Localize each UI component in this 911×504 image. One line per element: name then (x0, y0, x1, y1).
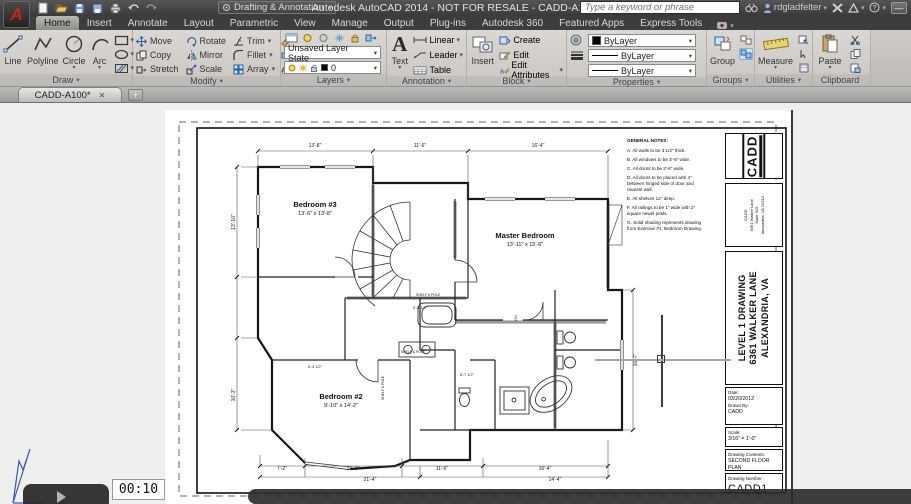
general-note: B. All windows to be 3'-6" wide. (627, 157, 709, 163)
ellipse-tool-button[interactable]: ▾ (114, 48, 135, 60)
open-file-icon[interactable] (54, 2, 68, 14)
layers-panel: Unsaved Layer State 0 Layers (281, 30, 387, 86)
object-color-dropdown[interactable]: ByLayer (588, 34, 696, 47)
toilet (565, 332, 576, 343)
firm-logo-text: CADD (746, 135, 759, 177)
general-note: F. All railings to be 1" wide with 2" sq… (627, 205, 709, 216)
paste-special-button[interactable] (848, 62, 862, 74)
rotate-button[interactable]: Rotate (186, 34, 227, 48)
dimension-label: SHELF & POLE (381, 375, 385, 400)
modify-panel-title[interactable]: Modify (133, 76, 280, 86)
toilet-tank (459, 388, 470, 393)
chevron-down-icon: ▾ (828, 67, 831, 70)
titleblock-logo: CADD (725, 133, 783, 179)
group-icon (713, 33, 733, 55)
current-layer-value: 0 (331, 63, 336, 73)
mirror-button[interactable]: Mirror (186, 48, 227, 62)
ribbon-tab-view[interactable]: View (286, 16, 324, 30)
toilet (565, 357, 576, 368)
edit-attributes-icon: a (499, 66, 509, 75)
modify-panel: Move Rotate Trim▾ Copy Mirror Fillet▾ St… (133, 30, 281, 86)
title-bar: Drafting & Annotation Autodesk AutoCAD 2… (0, 0, 911, 16)
ribbon-tab-annotate[interactable]: Annotate (120, 16, 176, 30)
dimension-label: 13'-8" (309, 143, 322, 149)
block-panel: Insert Create Edit aEdit Attributes▾ Blo… (467, 30, 567, 86)
autocad-window: Drafting & Annotation Autodesk AutoCAD 2… (0, 0, 911, 504)
dimension-label: 5'-8 1/2" (413, 306, 428, 310)
lineweight-value: ByLayer (621, 51, 654, 61)
paste-button[interactable]: Paste ▾ (816, 32, 844, 74)
doors (335, 257, 543, 382)
text-button[interactable]: A Text ▾ (390, 32, 409, 76)
ribbon-tab-express-tools[interactable]: Express Tools (632, 16, 710, 30)
play-icon (57, 491, 66, 503)
cut-button[interactable] (848, 34, 862, 46)
autodesk360-icon[interactable]: ▾ (848, 3, 865, 13)
groups-panel: Group Groups (707, 30, 755, 86)
polyline-label: Polyline (27, 56, 59, 66)
save-as-icon[interactable] (90, 2, 104, 14)
group-edit-button[interactable] (739, 48, 753, 60)
rectangle-tool-button[interactable]: ▾ (114, 34, 135, 46)
ribbon: Line Polyline Circle ▾ Arc ▾ ▾ (0, 30, 911, 87)
insert-block-icon (471, 33, 495, 55)
general-note: E. All shelves 12" deep. (627, 196, 709, 202)
properties-panel-title[interactable]: Properties (567, 77, 706, 87)
array-icon (233, 64, 244, 75)
match-properties-button[interactable] (570, 34, 584, 46)
file-tab-active[interactable]: CADD-A100* ✕ (18, 87, 122, 102)
dimension-label: 16'-4" (532, 143, 545, 149)
toilet (460, 394, 470, 407)
firm-address-line: Alexandria, VA 22310 (760, 196, 766, 234)
ribbon-tabs: HomeInsertAnnotateLayoutParametricViewMa… (36, 16, 710, 30)
dimension-label: 6'-4 1/2" (308, 365, 323, 369)
chevron-down-icon: ▾ (269, 51, 273, 59)
bedroom3-size: 13'-6" x 13'-8" (298, 211, 332, 217)
draw-panel: Line Polyline Circle ▾ Arc ▾ ▾ (0, 30, 133, 86)
titleblock-date: Date: 03/20/2012 Drawn By: CADD (725, 387, 783, 425)
edit-attributes-button[interactable]: aEdit Attributes▾ (499, 64, 563, 76)
search-binoculars-icon[interactable] (745, 3, 758, 13)
lineweight-sample (592, 55, 618, 56)
save-icon[interactable] (72, 2, 86, 14)
video-progress-bar[interactable] (248, 489, 911, 504)
ribbon-tab-layout[interactable]: Layout (176, 16, 222, 30)
chevron-down-icon: ▾ (861, 4, 865, 12)
hatch-icon (114, 63, 129, 74)
date-value: 03/20/2012 (728, 396, 780, 403)
ribbon-tab-bar: HomeInsertAnnotateLayoutParametricViewMa… (0, 16, 911, 30)
staircase (352, 202, 410, 306)
line-button[interactable]: Line (3, 32, 23, 74)
chevron-down-icon: ▾ (73, 67, 76, 70)
create-block-icon (499, 36, 511, 45)
insert-button[interactable]: Insert (470, 32, 495, 76)
linetype-dropdown[interactable]: ByLayer (588, 64, 696, 77)
general-note: G. Solid shading represents drawing from… (627, 220, 709, 231)
oval-tub (523, 368, 578, 420)
general-note: A. All walls to be 3 1/2" thick. (627, 148, 709, 154)
table-icon (413, 66, 427, 75)
master-size: 13'-11" x 15'-6" (507, 242, 544, 248)
dimension-label: SHELF & POLE (416, 293, 441, 297)
stretch-icon (136, 64, 147, 75)
quick-select-button[interactable] (797, 34, 811, 46)
groups-panel-title[interactable]: Groups (707, 74, 754, 86)
layer-state-dropdown[interactable]: Unsaved Layer State (284, 46, 381, 59)
table-button[interactable]: Table (413, 64, 463, 76)
linetype-value: ByLayer (621, 66, 654, 76)
undo-icon[interactable] (126, 2, 140, 14)
color-swatch (592, 36, 601, 45)
dimension-label: 16'-4" (539, 466, 552, 472)
line-label: Line (4, 56, 21, 66)
project-title-line: ALEXANDRIA, VA (760, 271, 771, 364)
linear-dim-icon (413, 36, 427, 44)
circle-button[interactable]: Circle ▾ (63, 32, 86, 74)
ribbon-tab-autodesk-360[interactable]: Autodesk 360 (474, 16, 551, 30)
username-label: rdgladfelter (774, 2, 822, 13)
dimension-label: 21'-4" (364, 477, 377, 483)
minimize-button[interactable]: — (891, 2, 907, 14)
fillet-button[interactable]: Fillet▾ (233, 48, 275, 62)
color-value: ByLayer (604, 36, 637, 46)
copy-clip-button[interactable] (848, 48, 862, 60)
svg-text:a: a (500, 68, 504, 75)
text-icon: A (392, 33, 407, 55)
ribbon-tab-output[interactable]: Output (376, 16, 422, 30)
line-icon (3, 33, 23, 55)
general-notes: GENERAL NOTES: A. All walls to be 3 1/2"… (627, 138, 709, 235)
arc-icon (90, 33, 110, 55)
polyline-icon (33, 33, 53, 55)
new-drawing-tab-button[interactable]: + (128, 89, 143, 101)
crosshair-pickbox (657, 355, 665, 363)
select-all-button[interactable] (797, 48, 811, 60)
sign-in-user[interactable]: rdgladfelter ▾ (763, 2, 827, 13)
rectangle-icon (114, 35, 129, 46)
create-block-button[interactable]: Create (499, 34, 563, 46)
dimension-label: 11'-6" (414, 143, 427, 149)
clipboard-panel-title[interactable]: Clipboard (813, 74, 870, 86)
user-icon (763, 3, 772, 13)
ungroup-button[interactable] (739, 34, 753, 46)
linear-dimension-button[interactable]: Linear▾ (413, 34, 463, 46)
toilet-tank (557, 331, 563, 344)
video-play-button[interactable] (23, 484, 109, 504)
help-icon[interactable]: ?▾ (869, 2, 886, 13)
general-notes-title: GENERAL NOTES: (627, 138, 709, 144)
file-tab-label: CADD-A100* (35, 90, 91, 101)
dimension-label: 13'-8" (347, 466, 360, 472)
ribbon-empty-space (871, 30, 911, 86)
measure-button[interactable]: Measure ▾ (758, 32, 793, 74)
leader-button[interactable]: Leader▾ (413, 49, 463, 61)
ribbon-tab-home[interactable]: Home (36, 16, 79, 30)
chevron-down-icon: ▾ (882, 4, 886, 12)
properties-panel: ByLayer ByLayer ByLayer Properties (567, 30, 707, 86)
draw-panel-title[interactable]: Draw (0, 74, 132, 86)
leader-icon (413, 51, 427, 59)
rotate-icon (186, 36, 197, 47)
project-title-line: LEVEL 1 DRAWING (737, 271, 748, 364)
fillet-icon (233, 50, 244, 61)
quick-access-toolbar (36, 2, 158, 14)
linetype-sample (592, 70, 618, 71)
redo-icon[interactable] (144, 2, 158, 14)
ribbon-tab-plug-ins[interactable]: Plug-ins (422, 16, 474, 30)
lightbulb-icon (288, 64, 296, 72)
block-panel-title[interactable]: Block (467, 76, 566, 86)
chevron-down-icon: ▾ (823, 4, 827, 12)
chevron-down-icon: ▾ (730, 22, 734, 30)
measure-icon (763, 33, 789, 55)
media-icon (716, 21, 728, 30)
utilities-panel-title[interactable]: Utilities (755, 74, 812, 86)
lineweight-list-icon[interactable] (570, 49, 584, 61)
ribbon-tab-manage[interactable]: Manage (324, 16, 376, 30)
utilities-panel: Measure ▾ Utilities (755, 30, 813, 86)
autocad-logo-icon: A (10, 6, 22, 23)
move-icon (136, 36, 147, 47)
contents-value: SECOND FLOOR PLAN (728, 458, 780, 471)
titleblock-firm-address: CADD6361 Walker LaneSuite 310Alexandria,… (725, 183, 783, 247)
array-button[interactable]: Array▾ (233, 62, 275, 76)
scale-icon (186, 64, 197, 75)
dimension-label: 7'-2" (277, 466, 287, 472)
scale-value: 3/16" = 1'-0" (728, 436, 780, 443)
ribbon-tab-featured-apps[interactable]: Featured Apps (551, 16, 632, 30)
ribbon-tab-insert[interactable]: Insert (79, 16, 120, 30)
master-name: Master Bedroom (495, 231, 555, 240)
chevron-down-icon: ▾ (272, 65, 276, 73)
copy-icon (136, 50, 147, 61)
circle-icon (64, 33, 84, 55)
infocenter: rdgladfelter ▾ ▾ ?▾ — (580, 1, 907, 14)
dimension-label: 13'-10" (231, 214, 237, 230)
general-note: D. All doors to be placed with 4" betwee… (627, 175, 709, 192)
titleblock-project: LEVEL 1 DRAWING6361 WALKER LANEALEXANDRI… (725, 251, 783, 385)
edit-block-icon (499, 51, 511, 60)
dimension-label: 14'-4" (549, 477, 562, 483)
bedroom2-size: 9'-10" x 14'-2" (324, 403, 358, 409)
group-label: Group (710, 56, 735, 66)
trim-icon (233, 36, 244, 47)
svg-text:?: ? (873, 5, 877, 12)
group-button[interactable]: Group (710, 32, 735, 74)
chevron-down-icon: ▾ (774, 67, 777, 70)
copy-button[interactable]: Copy (136, 48, 179, 62)
hatch-tool-button[interactable]: ▾ (114, 62, 135, 74)
ellipse-icon (114, 49, 129, 60)
move-button[interactable]: Move (136, 34, 179, 48)
general-note: C. All doors to be 2'-6" wide. (627, 166, 709, 172)
logo-bar (760, 135, 763, 177)
annotation-panel: A Text ▾ Linear▾ Leader▾ Table Annotatio… (387, 30, 467, 86)
ribbon-options-button[interactable]: ▾ (716, 21, 734, 30)
calculator-button[interactable] (797, 62, 811, 74)
dimension-label: SHELF & POLE (401, 350, 426, 354)
shaded-walls (347, 185, 608, 428)
chevron-down-icon: ▾ (398, 67, 401, 70)
annotation-panel-title[interactable]: Annotation (387, 76, 466, 86)
titleblock-contents: Drawing Contents: SECOND FLOOR PLAN (725, 449, 783, 471)
gear-icon (222, 3, 231, 12)
unlock-icon (310, 64, 318, 72)
video-timestamp: 00:10 (112, 479, 165, 500)
layer-dropdown[interactable]: 0 (284, 61, 381, 74)
stretch-button[interactable]: Stretch (136, 62, 179, 76)
dimension-label: 8'-7 1/2" (460, 373, 475, 377)
layer-state-value: Unsaved Layer State (288, 43, 371, 63)
paste-icon (821, 33, 839, 55)
layers-panel-title[interactable]: Layers (281, 74, 386, 86)
new-file-icon[interactable] (36, 2, 50, 14)
dimension-label: DN (513, 315, 518, 321)
bedroom3-name: Bedroom #3 (293, 200, 336, 209)
chevron-down-icon: ▾ (98, 67, 101, 70)
exchange-apps-icon[interactable] (832, 3, 843, 13)
sun-icon (299, 64, 307, 72)
insert-label: Insert (471, 56, 494, 66)
titleblock-scale: Scale: 3/16" = 1'-0" (725, 427, 783, 447)
file-tab-bar: CADD-A100* ✕ + (0, 87, 911, 103)
ribbon-tab-parametric[interactable]: Parametric (222, 16, 286, 30)
clipboard-panel: Paste ▾ Clipboard (813, 30, 871, 86)
polyline-button[interactable]: Polyline (27, 32, 59, 74)
toilet-tank (557, 356, 563, 369)
chevron-down-icon: ▾ (268, 37, 272, 45)
general-notes-list: A. All walls to be 3 1/2" thick.B. All w… (627, 148, 709, 232)
search-input[interactable] (580, 1, 740, 14)
drawing-canvas[interactable]: Bedroom #3 13'-6" x 13'-8" Master Bedroo… (0, 103, 911, 504)
scale-button[interactable]: Scale (186, 62, 227, 76)
trim-button[interactable]: Trim▾ (233, 34, 275, 48)
lineweight-dropdown[interactable]: ByLayer (588, 49, 696, 62)
mirror-icon (186, 50, 197, 61)
application-menu-button[interactable]: A (3, 1, 30, 28)
bedroom2-name: Bedroom #2 (319, 392, 362, 401)
layer-color-swatch (321, 64, 328, 71)
plot-icon[interactable] (108, 2, 122, 14)
project-title-line: 6361 WALKER LANE (748, 271, 759, 364)
paper-sheet: Bedroom #3 13'-6" x 13'-8" Master Bedroo… (165, 110, 793, 504)
close-icon[interactable]: ✕ (99, 91, 106, 100)
room-labels: Bedroom #3 13'-6" x 13'-8" Master Bedroo… (293, 200, 555, 409)
dimension-label: 10'-3" (231, 388, 237, 401)
drawn-by-value: CADD (728, 409, 780, 416)
arc-button[interactable]: Arc ▾ (90, 32, 110, 74)
dimension-label: 11'-6" (436, 466, 449, 472)
